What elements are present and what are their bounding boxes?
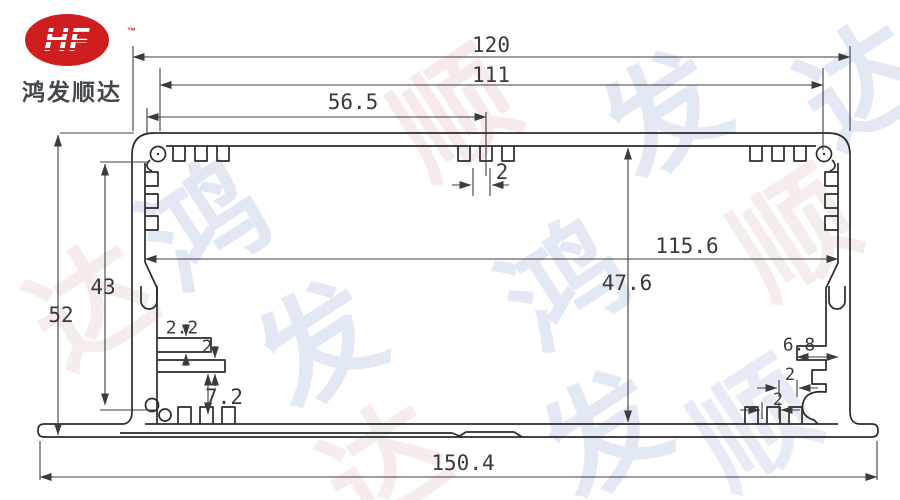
top-left-teeth [173, 146, 229, 161]
left-wall-teeth [145, 172, 158, 230]
boss-center-dot [157, 153, 159, 155]
floor-teeth-left [178, 407, 235, 424]
company-name: 鸿发顺达 [22, 73, 152, 107]
logo-stripe [37, 48, 97, 50]
right-wall-teeth [825, 172, 838, 230]
logo-stripe [37, 32, 97, 34]
dimension-lines [40, 46, 877, 480]
left-lower-boss [159, 409, 171, 421]
left-keyhole [141, 286, 157, 309]
brand-logo: HF ™ 鸿发顺达 [22, 14, 152, 107]
profile-outline [38, 133, 878, 437]
outer-shell [38, 133, 878, 437]
logo-ellipse: HF [25, 14, 109, 66]
logo-stripe [37, 40, 97, 42]
drawing-canvas: 鸿发顺达鸿发顺达发达顺 HF ™ 鸿发顺达 [0, 0, 900, 500]
top-right-teeth [750, 146, 806, 161]
trademark-symbol: ™ [127, 26, 136, 36]
boss-center-dot [823, 153, 825, 155]
extension-lines [40, 46, 877, 480]
right-keyhole [829, 286, 845, 309]
inner-left-wall [145, 163, 157, 424]
